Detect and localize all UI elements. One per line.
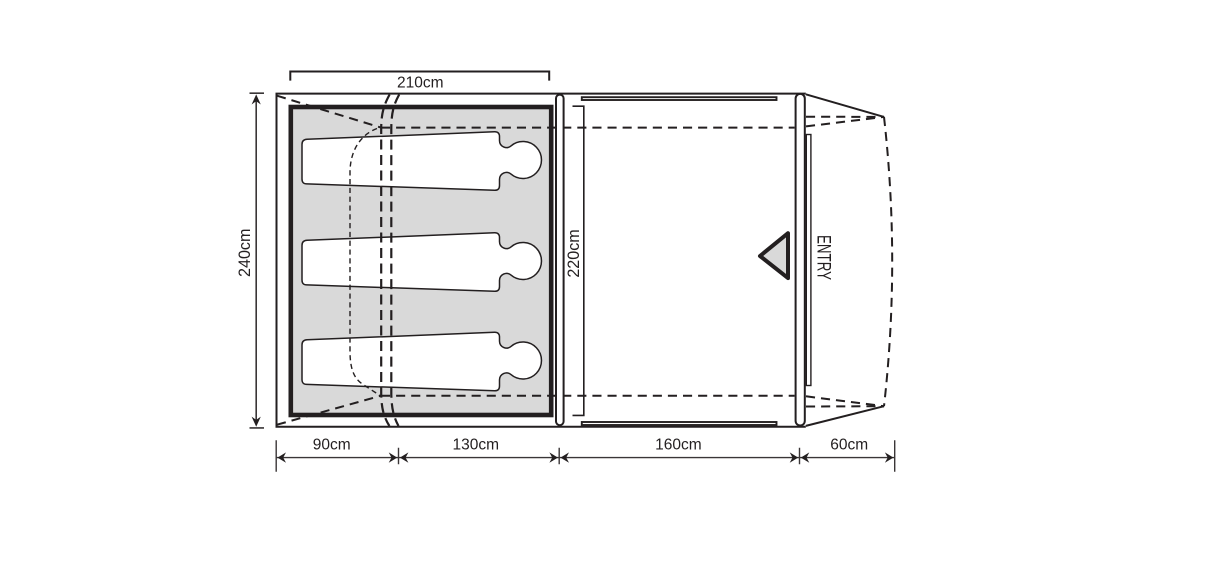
svg-text:ENTRY: ENTRY bbox=[813, 235, 834, 280]
svg-text:210cm: 210cm bbox=[397, 74, 444, 91]
svg-text:60cm: 60cm bbox=[830, 436, 868, 453]
svg-text:90cm: 90cm bbox=[313, 436, 351, 453]
svg-text:220cm: 220cm bbox=[565, 229, 583, 277]
svg-text:160cm: 160cm bbox=[655, 436, 702, 453]
svg-text:240cm: 240cm bbox=[236, 229, 254, 277]
svg-text:130cm: 130cm bbox=[453, 436, 500, 453]
